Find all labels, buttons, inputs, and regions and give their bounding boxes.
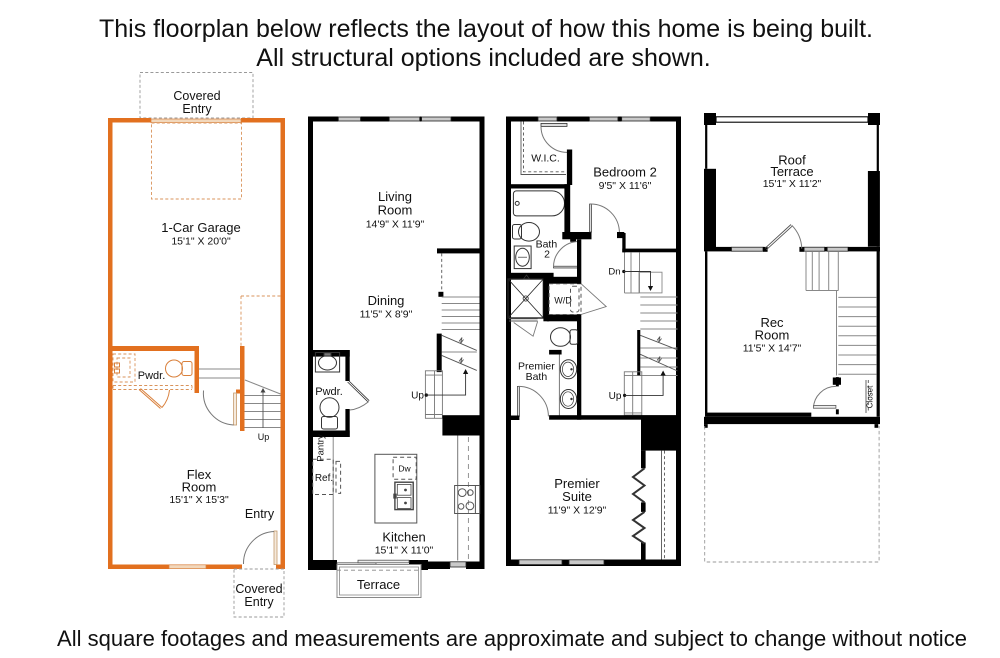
svg-text:15'1" X 11'0": 15'1" X 11'0" [375, 545, 434, 557]
svg-text:11'9" X 12'9": 11'9" X 12'9" [548, 505, 607, 517]
svg-text:Room: Room [378, 203, 413, 218]
svg-text:This floorplan below reflects: This floorplan below reflects the layout… [99, 15, 873, 43]
svg-text:W.I.C.: W.I.C. [531, 153, 560, 165]
svg-text:Up: Up [258, 432, 270, 442]
svg-text:Up: Up [411, 391, 424, 402]
svg-text:2: 2 [544, 248, 550, 260]
svg-text:15'1" X 20'0": 15'1" X 20'0" [171, 236, 231, 248]
svg-text:1-Car Garage: 1-Car Garage [161, 220, 240, 235]
svg-text:11'5" X 14'7": 11'5" X 14'7" [743, 343, 802, 355]
svg-text:Room: Room [182, 480, 217, 495]
svg-text:14'9" X 11'9": 14'9" X 11'9" [366, 219, 425, 231]
svg-text:Bedroom 2: Bedroom 2 [593, 165, 657, 180]
svg-text:Dn: Dn [608, 267, 620, 278]
svg-text:Suite: Suite [562, 489, 592, 504]
svg-text:All structural options include: All structural options included are show… [256, 44, 710, 72]
svg-text:Up: Up [609, 391, 622, 402]
svg-text:Kitchen: Kitchen [382, 530, 425, 545]
svg-text:Covered: Covered [173, 89, 220, 103]
svg-text:Entry: Entry [245, 507, 275, 521]
svg-text:15'1" X 11'2": 15'1" X 11'2" [763, 178, 822, 190]
svg-text:Closet: Closet [865, 385, 874, 408]
svg-text:11'5" X 8'9": 11'5" X 8'9" [360, 309, 413, 321]
svg-text:Pantry: Pantry [316, 434, 327, 462]
svg-text:W/D: W/D [554, 296, 572, 306]
svg-text:Terrace: Terrace [357, 577, 400, 592]
svg-text:All square footages and measur: All square footages and measurements are… [57, 626, 967, 651]
svg-text:Entry: Entry [182, 102, 212, 116]
svg-text:Pwdr.: Pwdr. [315, 386, 343, 398]
svg-text:9'5" X 11'6": 9'5" X 11'6" [599, 180, 652, 192]
svg-text:Bath: Bath [526, 371, 548, 383]
svg-text:Ref.: Ref. [315, 473, 333, 484]
svg-text:Covered: Covered [235, 582, 282, 596]
svg-text:Dining: Dining [368, 293, 405, 308]
svg-text:Pwdr.: Pwdr. [138, 370, 166, 382]
svg-text:Entry: Entry [244, 595, 274, 609]
svg-text:Dw: Dw [398, 464, 411, 474]
svg-text:Room: Room [755, 328, 790, 343]
svg-text:Terrace: Terrace [770, 164, 813, 179]
svg-text:15'1" X 15'3": 15'1" X 15'3" [169, 494, 229, 506]
